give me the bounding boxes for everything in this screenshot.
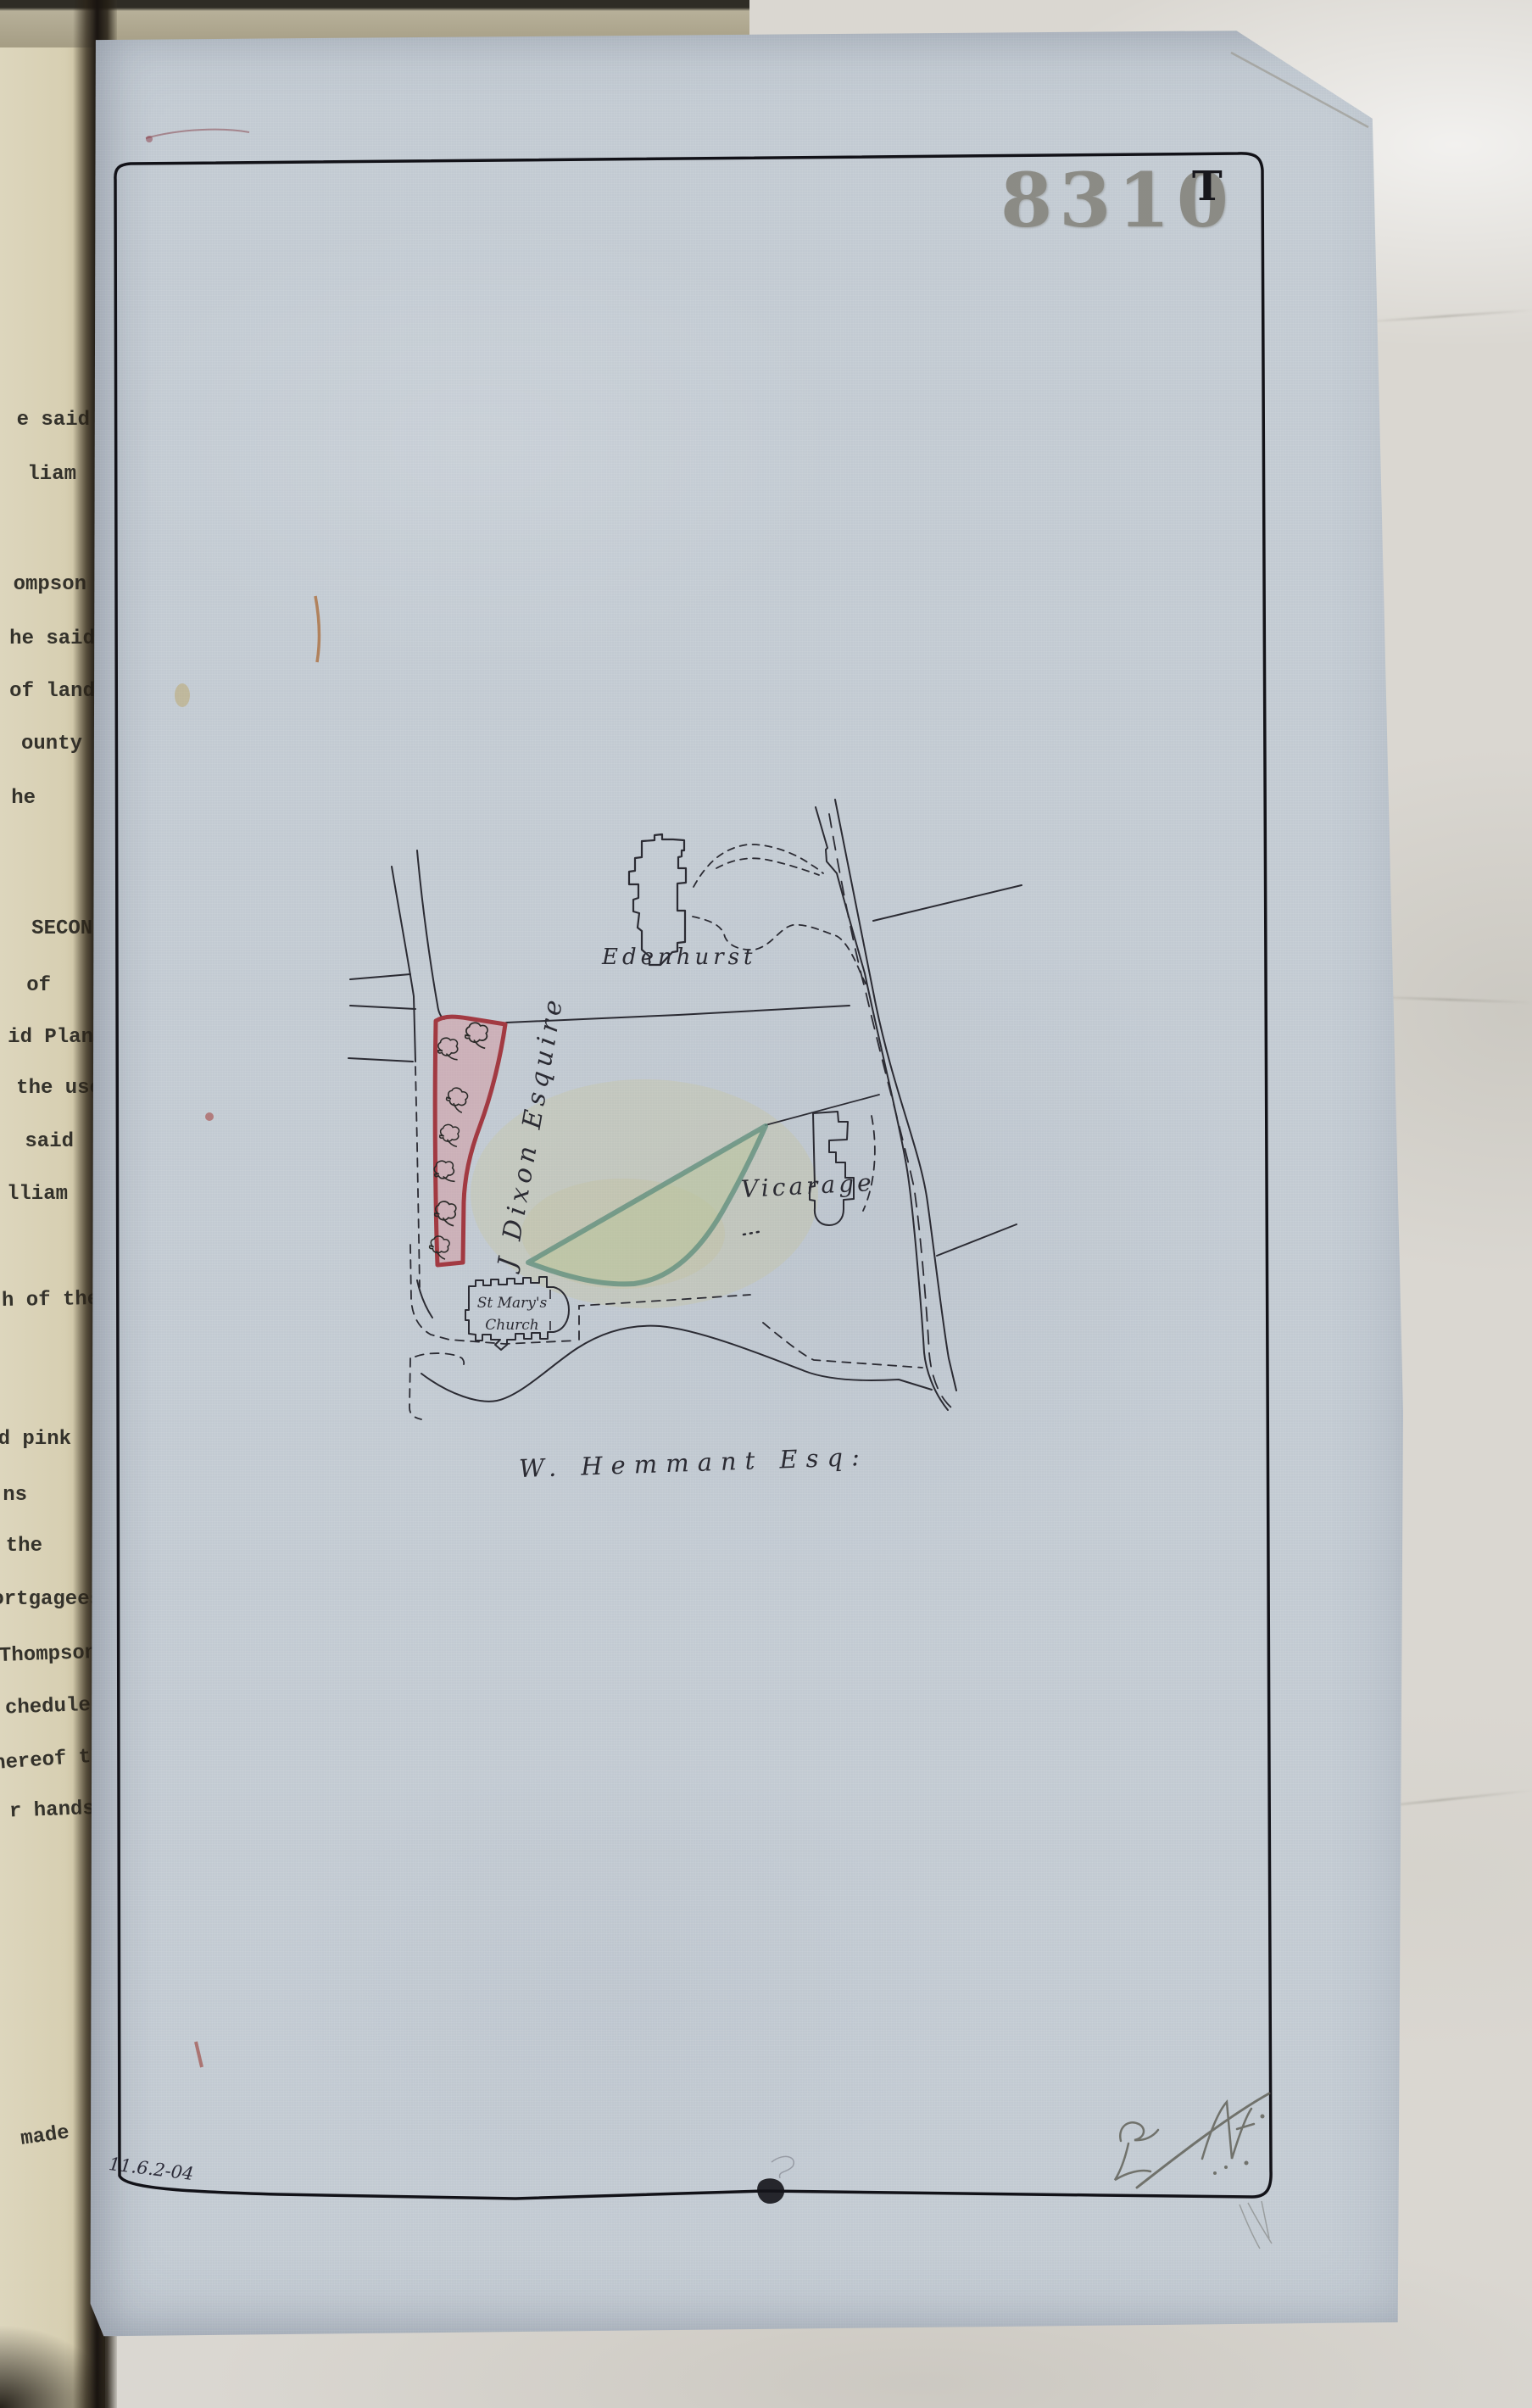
label-edenhurst: Edenhurst <box>602 945 756 970</box>
ledger-text-fragment: the <box>6 1535 42 1558</box>
church-label-line1: St Mary's <box>468 1292 556 1314</box>
label-st-marys-church: St Mary's Church <box>468 1292 556 1337</box>
ledger-text-fragment: d pink <box>0 1428 71 1451</box>
ledger-text-fragment: of <box>26 974 51 997</box>
ledger-text-fragment: said <box>25 1130 74 1153</box>
scanned-deed-plan-page: e said liam ompson he said of land ounty… <box>0 0 1532 2408</box>
ledger-text-fragment: lliam <box>7 1183 68 1206</box>
spine-shadow <box>0 2277 161 2408</box>
ledger-text-fragment: he <box>11 787 36 810</box>
church-label-line2: Church <box>468 1314 556 1336</box>
ledger-text-fragment: ns <box>3 1484 27 1507</box>
ledger-text-fragment: liam <box>27 463 76 486</box>
folio-stamp-suffix: T <box>1192 163 1223 210</box>
ledger-text-fragment: made <box>19 2121 71 2151</box>
